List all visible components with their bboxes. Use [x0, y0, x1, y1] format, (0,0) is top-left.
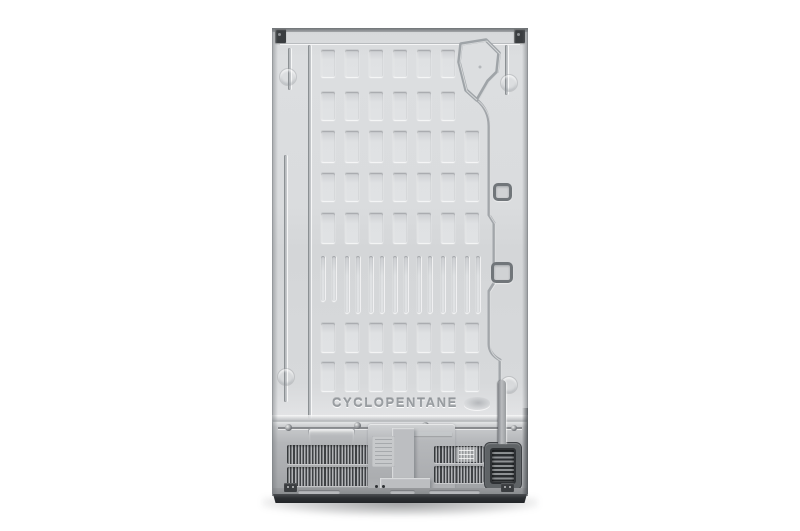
- thin-slot-pair: [393, 256, 408, 313]
- panel-slot: [345, 362, 359, 391]
- hinge-bracket-right: [514, 29, 525, 43]
- panel-slot: [393, 92, 407, 120]
- embossed-rib: [392, 428, 414, 480]
- leveling-foot-right: [501, 483, 514, 492]
- thin-slot-pair: [369, 256, 384, 313]
- screw-head: [285, 424, 292, 431]
- vent-slat-band: [287, 467, 369, 486]
- top-edge: [272, 28, 528, 32]
- panel-slot: [369, 92, 383, 120]
- panel-knockout-row: [321, 92, 455, 120]
- panel-slot: [417, 131, 431, 162]
- base-dark-strip: [273, 494, 527, 503]
- panel-slot: [393, 362, 407, 391]
- refrigerator-back: CYCLOPENTANE: [272, 28, 528, 503]
- stiffening-groove: [308, 45, 311, 419]
- panel-slot: [417, 323, 431, 352]
- spec-label: [372, 436, 395, 467]
- drain-tube: [498, 380, 506, 444]
- valve-cover-and-channel-emboss: [452, 34, 514, 420]
- embossed-rib-arm: [414, 432, 452, 436]
- stamped-boss: [277, 368, 295, 386]
- bracket-highlight: [517, 33, 520, 36]
- vent-label: [456, 447, 477, 462]
- panel-slot: [417, 92, 431, 120]
- panel-slot: [417, 362, 431, 391]
- panel-slot: [321, 131, 335, 162]
- ventilation-grille-left: [287, 445, 369, 486]
- screw-head: [511, 425, 517, 431]
- vent-slat-band: [287, 445, 369, 464]
- panel-slot: [369, 362, 383, 391]
- panel-slot: [393, 131, 407, 162]
- panel-slot: [345, 213, 359, 243]
- mounting-knockout: [493, 183, 512, 201]
- stamped-boss: [279, 68, 297, 86]
- panel-slot: [321, 92, 335, 120]
- panel-slot: [393, 173, 407, 201]
- panel-slot: [321, 213, 335, 243]
- leveling-foot-left: [284, 483, 297, 492]
- panel-slot: [369, 50, 383, 77]
- panel-slot: [417, 173, 431, 201]
- panel-slot: [369, 131, 383, 162]
- panel-slot: [393, 323, 407, 352]
- panel-slot: [345, 50, 359, 77]
- bracket-highlight: [278, 33, 281, 36]
- vent-slat-band: [434, 466, 484, 483]
- thin-slot-pair: [345, 256, 360, 313]
- panel-slot: [369, 323, 383, 352]
- bolt-dot: [382, 485, 385, 488]
- cyclopentane-embossed-text: CYCLOPENTANE: [332, 396, 472, 410]
- panel-slot: [417, 50, 431, 77]
- product-image-canvas: CYCLOPENTANE: [0, 0, 800, 531]
- plinth-recess: [390, 490, 415, 494]
- panel-slot: [345, 323, 359, 352]
- thin-slot-pair: [417, 256, 432, 313]
- screw-head: [354, 422, 361, 429]
- plinth-recess: [429, 490, 480, 494]
- panel-slot: [321, 362, 335, 391]
- bolt-dot: [375, 485, 378, 488]
- compressor-bay: [272, 421, 528, 494]
- panel-slot: [321, 323, 335, 352]
- panel-slot: [345, 173, 359, 201]
- panel-slot: [345, 131, 359, 162]
- panel-slot: [393, 213, 407, 243]
- recycle-emblem-icon: [464, 397, 490, 410]
- condenser-grille-fins: [490, 448, 516, 484]
- thin-slot-pair: [321, 256, 336, 301]
- panel-slot: [369, 213, 383, 243]
- panel-slot: [369, 173, 383, 201]
- panel-slot: [345, 92, 359, 120]
- panel-slot: [321, 173, 335, 201]
- panel-slot: [321, 50, 335, 77]
- panel-slot: [393, 50, 407, 77]
- stiffening-groove: [284, 155, 287, 402]
- panel-slot: [417, 213, 431, 243]
- mounting-knockout: [491, 262, 513, 283]
- plinth-recess: [298, 490, 340, 494]
- panel-knockout-row: [321, 50, 455, 77]
- hinge-bracket-left: [275, 29, 286, 43]
